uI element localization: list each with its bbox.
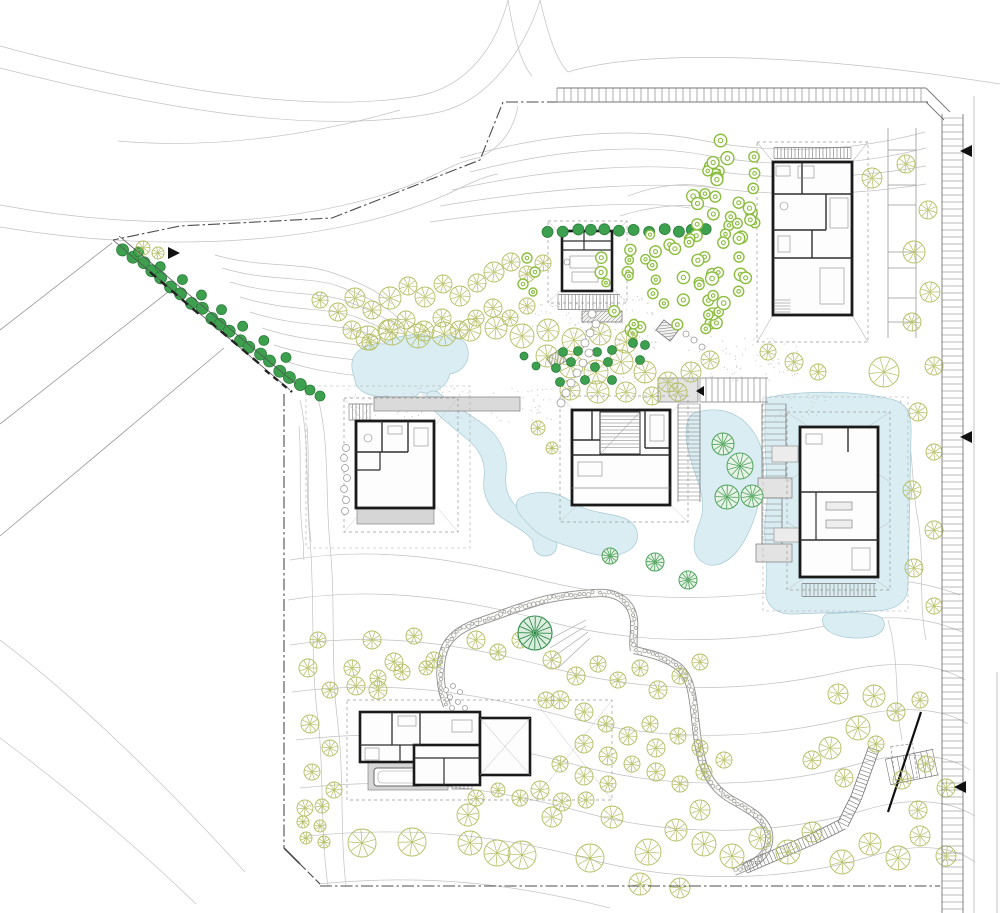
building-house-f (347, 700, 612, 800)
building-house-a (757, 142, 868, 342)
site-plan-canvas (0, 0, 1000, 913)
layer-buildings (306, 142, 908, 800)
building-house-d (560, 396, 700, 522)
site-plan (0, 0, 1000, 913)
